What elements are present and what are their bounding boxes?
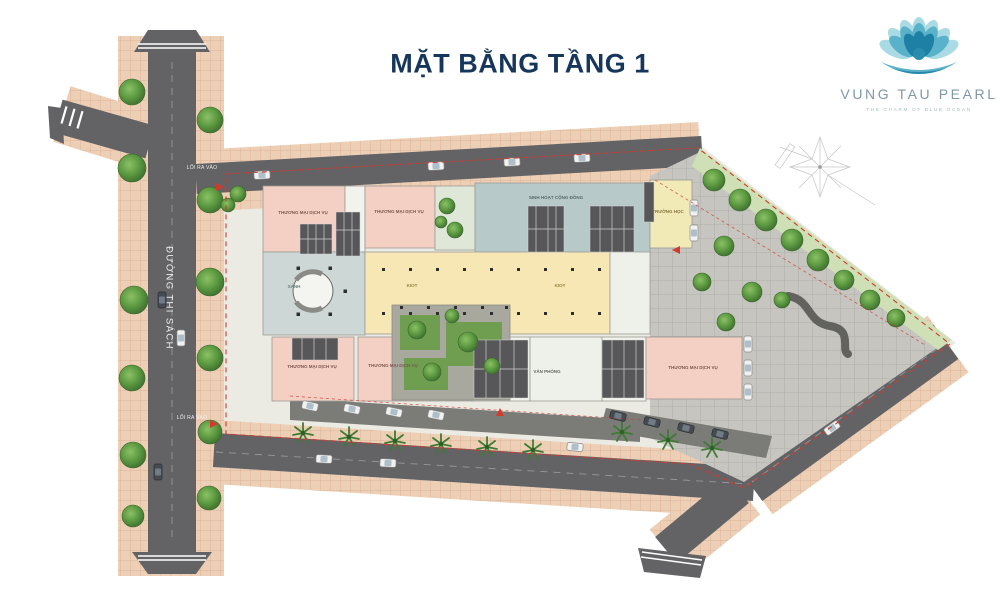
- kiosk-label-1: KIOT: [407, 283, 418, 288]
- kiosk-label-2: KIOT: [555, 283, 566, 288]
- logo-name: VUNG TAU PEARL: [840, 86, 997, 102]
- commercial-label-3: THƯƠNG MẠI DỊCH VỤ: [287, 364, 337, 369]
- entrance-label-bottom: LỐI RA VÀO: [177, 415, 208, 421]
- school-label: TRƯỜNG HỌC: [652, 209, 684, 214]
- office-label: VĂN PHÒNG: [533, 369, 560, 374]
- compass-sketch-icon: [775, 137, 875, 205]
- reception-desk: [293, 271, 333, 311]
- entrance-label-top: LỐI RA VÀO: [187, 165, 218, 171]
- community-room-label: SINH HOẠT CỘNG ĐỒNG: [529, 195, 583, 200]
- page-title: MẶT BẰNG TẦNG 1: [390, 48, 650, 79]
- site-plan-canvas: MẶT BẰNG TẦNG 1 ĐƯỜNG THI SÁCH LỐI RA VÀ…: [0, 0, 1000, 600]
- commercial-label-1: THƯƠNG MẠI DỊCH VỤ: [278, 210, 328, 215]
- lotus-icon: [877, 17, 962, 74]
- logo-tagline: THE CHARM OF BLUE OCEAN: [866, 107, 972, 113]
- commercial-label-4: THƯƠNG MẠI DỊCH VỤ: [368, 363, 418, 368]
- logo: VUNG TAU PEARL THE CHARM OF BLUE OCEAN: [838, 4, 1000, 122]
- street-name-label: ĐƯỜNG THI SÁCH: [163, 246, 174, 350]
- commercial-label-5: THƯƠNG MẠI DỊCH VỤ: [668, 365, 718, 370]
- lobby-label: SẢNH: [288, 284, 301, 289]
- commercial-label-2: THƯƠNG MẠI DỊCH VỤ: [374, 209, 424, 214]
